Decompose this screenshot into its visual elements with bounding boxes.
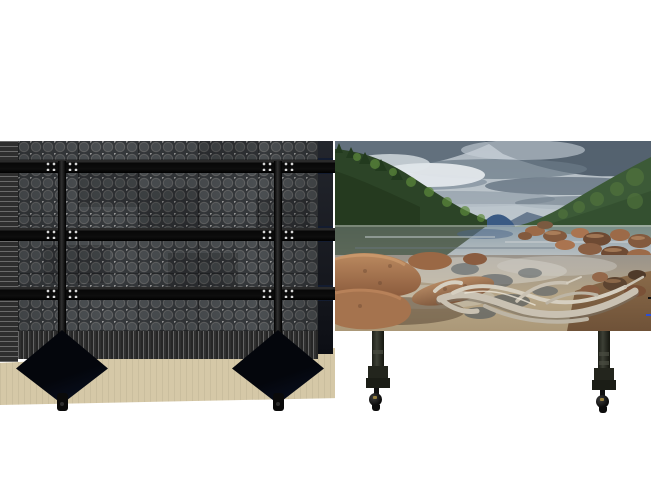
bolt-cluster xyxy=(68,230,78,239)
caster-wheel-left xyxy=(57,393,68,411)
caster-tip xyxy=(599,407,607,413)
bolt-cluster xyxy=(68,289,78,298)
bolt-cluster xyxy=(284,162,294,171)
bolt-cluster xyxy=(262,162,272,171)
bolt-cluster xyxy=(262,230,272,239)
edge-artifact-dark xyxy=(648,297,651,299)
caster-gold-accent xyxy=(373,396,377,399)
bolt-cluster xyxy=(284,289,294,298)
leg-notch xyxy=(599,352,609,356)
leg-notch xyxy=(373,350,383,354)
caster-tip xyxy=(372,405,380,411)
leg-notch xyxy=(599,361,609,365)
landscape-image xyxy=(335,141,651,331)
bolt-cluster xyxy=(284,230,294,239)
leg-foot xyxy=(592,380,616,390)
caster-wheel-right xyxy=(273,393,284,411)
edge-artifact-blue xyxy=(646,314,651,316)
module-shade xyxy=(140,189,200,229)
bolt-cluster xyxy=(46,230,56,239)
bolt-cluster xyxy=(46,162,56,171)
panel-left-edge xyxy=(0,141,18,362)
caster-gold-accent xyxy=(600,398,604,401)
bolt-cluster xyxy=(262,289,272,298)
module-shade xyxy=(44,245,110,283)
bolt-cluster xyxy=(68,162,78,171)
waterline-glint xyxy=(335,225,515,227)
led-screen xyxy=(335,141,651,331)
product-photo xyxy=(0,0,670,497)
module-shade xyxy=(168,253,238,287)
bolt-cluster xyxy=(46,289,56,298)
leg-foot xyxy=(366,378,390,388)
